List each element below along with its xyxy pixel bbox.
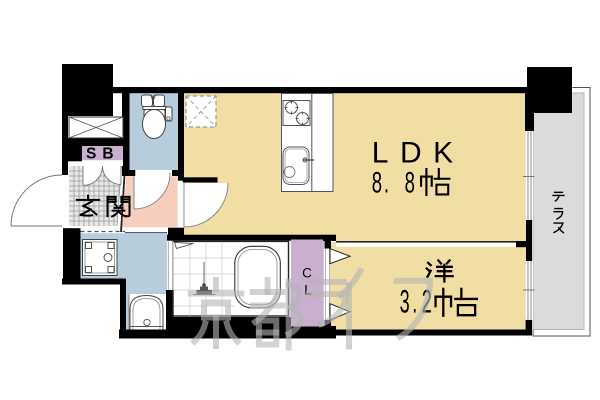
svg-text:8: 8 — [405, 166, 415, 200]
svg-text:3: 3 — [400, 283, 410, 320]
svg-text:C: C — [302, 266, 312, 281]
svg-text:LDK: LDK — [372, 136, 465, 169]
svg-text:8: 8 — [372, 166, 382, 200]
svg-text:SB: SB — [86, 145, 120, 162]
svg-text:.: . — [384, 166, 389, 200]
svg-text:.: . — [412, 283, 417, 320]
